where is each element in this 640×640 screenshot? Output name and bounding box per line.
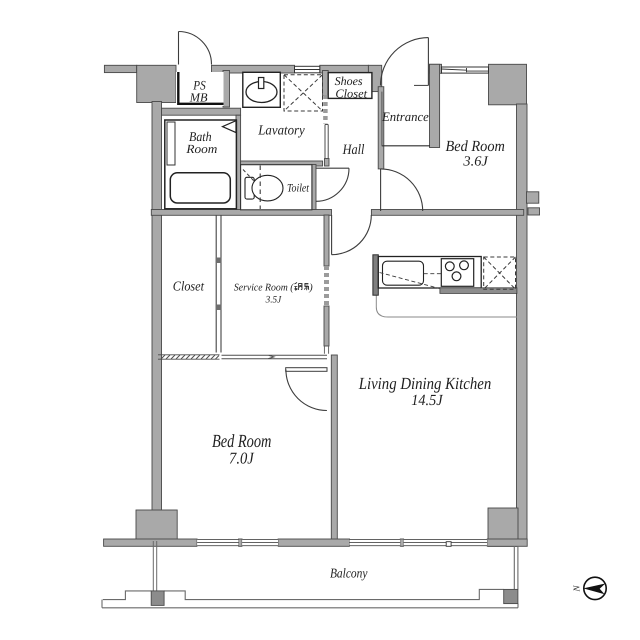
svg-text:MB: MB	[189, 90, 208, 104]
svg-text:Hall: Hall	[342, 142, 365, 158]
svg-text:Closet: Closet	[173, 278, 205, 293]
svg-text:Living Dining Kitchen: Living Dining Kitchen	[358, 374, 491, 393]
svg-text:Toilet: Toilet	[287, 183, 310, 195]
svg-text:14.5J: 14.5J	[411, 392, 443, 409]
svg-text:3.6J: 3.6J	[462, 155, 488, 170]
svg-text:Bed Room: Bed Room	[446, 138, 505, 155]
svg-text:7.0J: 7.0J	[229, 449, 254, 468]
svg-text:Room: Room	[185, 142, 217, 156]
svg-text:Lavatory: Lavatory	[257, 124, 305, 139]
svg-text:3.5J: 3.5J	[265, 294, 282, 305]
svg-text:Service Room (: Service Room (	[234, 283, 294, 294]
svg-text:): )	[308, 283, 313, 294]
svg-text:N: N	[572, 585, 582, 593]
svg-text:Entrance: Entrance	[381, 109, 429, 124]
svg-text:Closet: Closet	[335, 87, 367, 101]
svg-text:Balcony: Balcony	[330, 566, 368, 581]
